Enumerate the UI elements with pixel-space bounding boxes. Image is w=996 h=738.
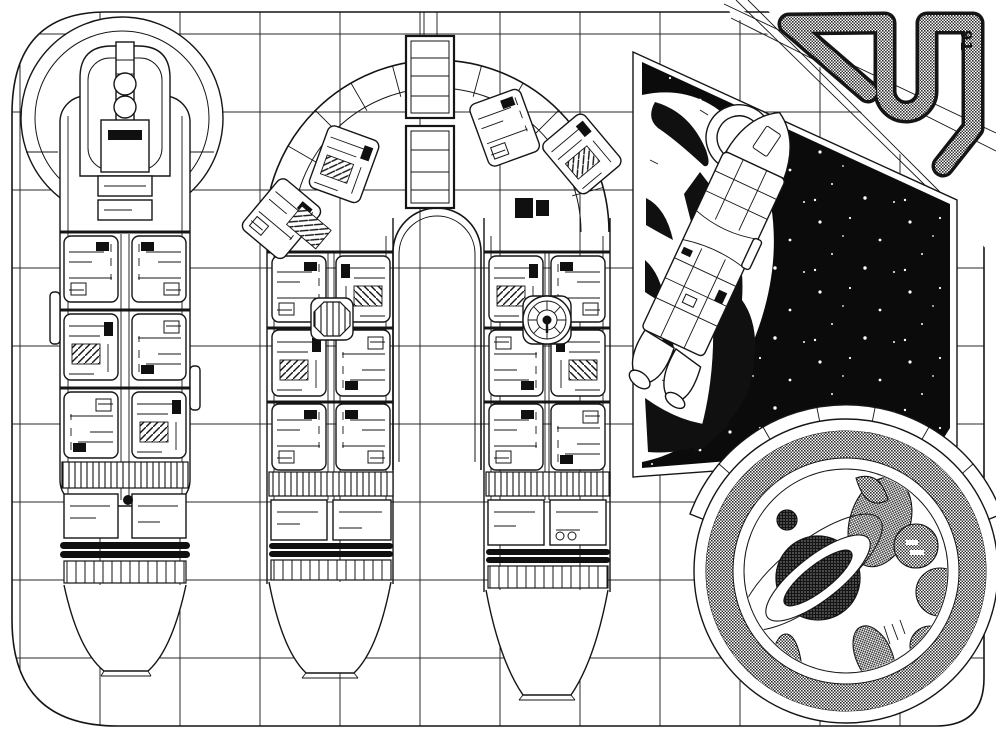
airlock-octagon	[311, 298, 353, 340]
arch-leg-right	[484, 218, 610, 700]
leg-left-tail	[269, 582, 391, 673]
side-pod-right	[190, 366, 200, 410]
central-mast	[406, 12, 454, 208]
rib-band	[62, 462, 188, 488]
comic-page: 91	[0, 0, 996, 738]
stripe-band	[60, 542, 190, 549]
moon	[777, 510, 797, 530]
side-pod-left	[50, 292, 60, 344]
turret-airlock	[523, 296, 571, 344]
porthole-view	[690, 405, 996, 723]
deck-plan-illustration: 91	[0, 0, 996, 738]
arch-leg-left	[267, 218, 393, 678]
page-number: 91	[957, 30, 975, 52]
arch-structure	[240, 12, 624, 700]
leg-right-tail	[486, 590, 608, 695]
